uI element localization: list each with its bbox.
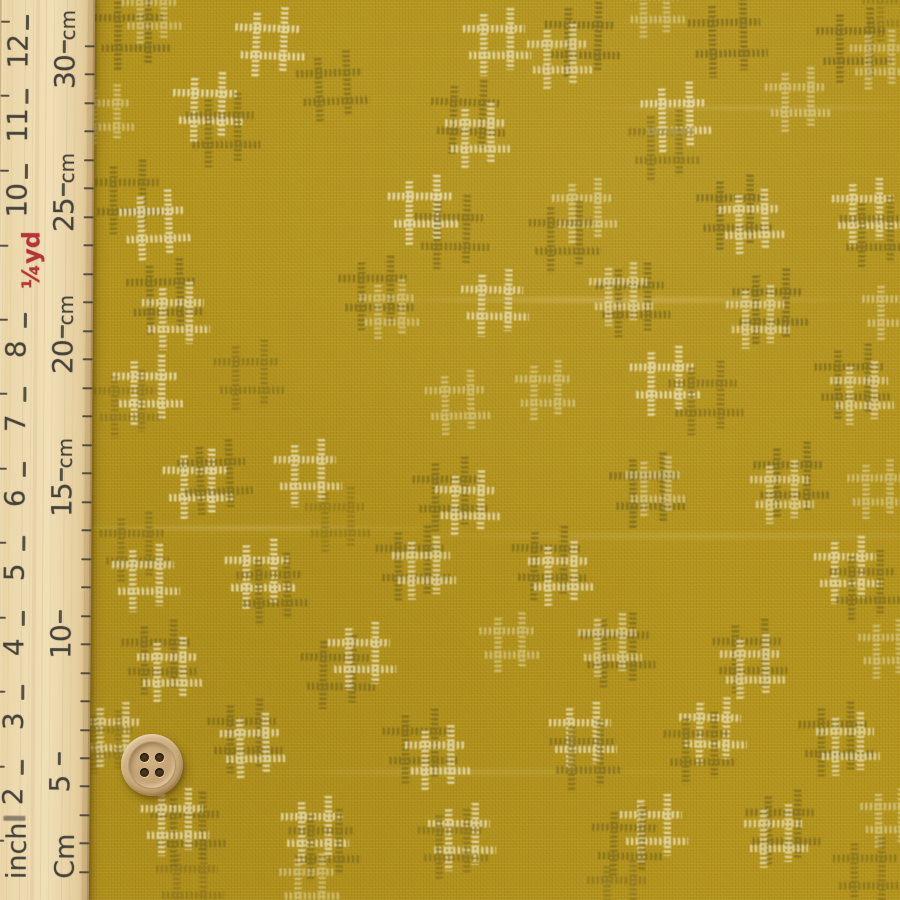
- inch-tick-6: [22, 461, 25, 476]
- inch-tick-10: [24, 163, 27, 178]
- cm-edge-tick-20: [83, 301, 93, 304]
- cm-tick-30: [62, 40, 65, 53]
- cm-edge-tick-21: [83, 273, 93, 276]
- button-hole-2: [155, 753, 164, 762]
- cm-edge-tick-12: [81, 529, 91, 532]
- inch-tick-3: [21, 684, 24, 699]
- cm-edge-tick-28: [85, 73, 95, 76]
- cm-tick-15: [59, 468, 62, 481]
- cm-edge-tick-24: [84, 187, 94, 190]
- cm-edge-tick-23: [84, 216, 94, 219]
- cm-edge-tick-22: [83, 244, 93, 247]
- inch-tick-2: [20, 759, 23, 774]
- cm-tick-5: [57, 752, 60, 765]
- inch-tick-12: [25, 14, 28, 29]
- cm-edge-tick-3: [80, 785, 90, 788]
- cm-edge-tick-26: [84, 130, 94, 133]
- cm-tick-20: [60, 325, 63, 338]
- inch-edge-tick-5: [0, 467, 7, 470]
- inch-edge-tick-0: [0, 839, 4, 842]
- inch-edge-tick-3: [0, 616, 6, 619]
- inch-edge-tick-1: [0, 765, 5, 768]
- cm-edge-tick-11: [81, 558, 91, 561]
- cm-edge-tick-14: [82, 472, 92, 475]
- cm-edge-tick-27: [84, 102, 94, 105]
- inch-edge-tick-7: [0, 318, 8, 321]
- cm-edge-tick-0: [79, 871, 89, 874]
- cm-edge-tick-10: [81, 586, 91, 589]
- cm-edge-tick-5: [80, 729, 90, 732]
- cm-edge-tick-2: [79, 814, 89, 817]
- cm-edge-tick-1: [79, 842, 89, 845]
- inch-edge-tick-8: [0, 244, 8, 247]
- cm-edge-tick-8: [81, 643, 91, 646]
- inch-tick-8: [23, 312, 26, 327]
- inch-tick-11: [25, 88, 28, 103]
- cm-edge-tick-25: [84, 159, 94, 162]
- cm-edge-tick-17: [82, 387, 92, 390]
- cm-edge-tick-18: [83, 358, 93, 361]
- inch-edge-tick-2: [0, 690, 5, 693]
- cm-tick-10: [58, 610, 61, 623]
- cm-edge-tick-15: [82, 444, 92, 447]
- ruler-fine-print-mark: [3, 816, 25, 821]
- cm-edge-tick-16: [82, 415, 92, 418]
- cm-edge-tick-13: [82, 501, 92, 504]
- cm-edge-tick-7: [80, 672, 90, 675]
- cm-tick-25: [61, 183, 64, 196]
- inch-edge-tick-9: [0, 169, 9, 172]
- inch-tick-7: [23, 386, 26, 401]
- inch-edge-tick-6: [0, 392, 7, 395]
- wooden-button: [121, 734, 183, 796]
- button-hole-1: [140, 753, 149, 762]
- inch-tick-5: [22, 535, 25, 550]
- button-hole-3: [140, 768, 149, 777]
- cm-edge-tick-19: [83, 330, 93, 333]
- photo-fabric-with-ruler: ¼yd inch Cm 121110876543230cm25cm20cm15c…: [0, 0, 900, 900]
- cm-edge-tick-29: [85, 45, 95, 48]
- wooden-ruler: ¼yd inch Cm 121110876543230cm25cm20cm15c…: [0, 0, 95, 900]
- inch-edge-tick-4: [0, 541, 6, 544]
- button-recess: [129, 742, 175, 788]
- button-hole-4: [155, 768, 164, 777]
- inch-tick-4: [21, 610, 24, 625]
- inch-edge-tick-11: [1, 20, 10, 23]
- cm-edge-tick-9: [81, 615, 91, 618]
- cm-edge-tick-6: [80, 700, 90, 703]
- cm-edge-tick-4: [80, 757, 90, 760]
- inch-edge-tick-10: [0, 94, 9, 97]
